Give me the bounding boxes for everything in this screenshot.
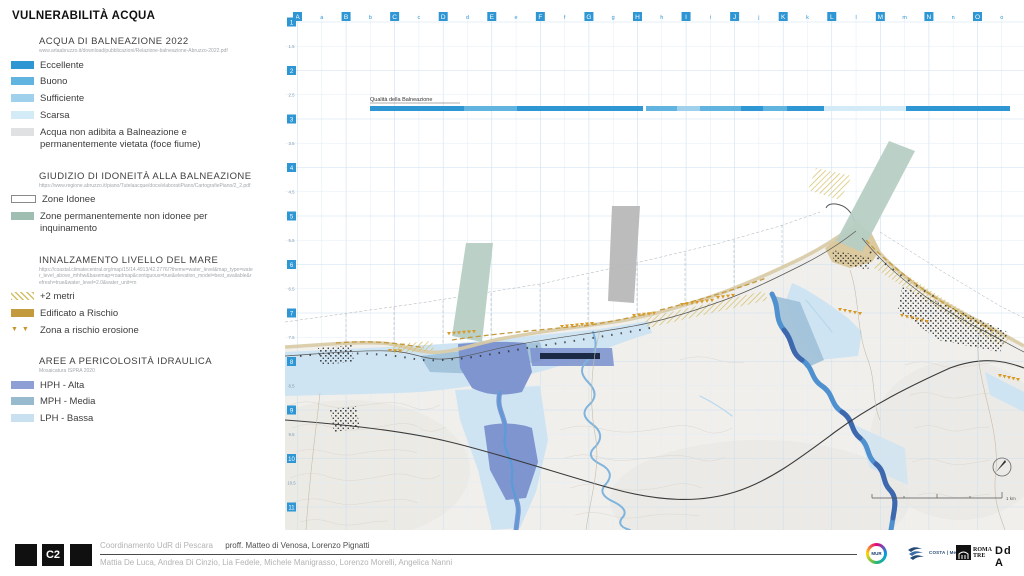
grid-col-label: I	[685, 14, 687, 21]
legend-swatch-fill	[11, 414, 34, 422]
legend-swatch-fill	[11, 77, 34, 85]
legend-label: MPH - Media	[40, 396, 95, 408]
grid-subcol-label: l	[855, 15, 856, 21]
legend-item: ▼▼Zona a rischio erosione	[11, 325, 285, 337]
legend-swatch-fill	[11, 94, 34, 102]
legend-item: Zone Idonee	[11, 194, 285, 206]
legend-item: Acqua non adibita a Balneazione e perman…	[11, 127, 285, 152]
legend-label: Eccellente	[40, 60, 84, 72]
legend-heading: GIUDIZIO DI IDONEITÀ ALLA BALNEAZIONE	[39, 171, 285, 182]
bathing-bar-segment	[646, 106, 677, 111]
legend-item: Eccellente	[11, 60, 285, 72]
bathing-bar-segment	[517, 106, 643, 111]
grid-col-label: D	[441, 14, 446, 21]
map-canvas: 1 km AaBbCcDdEeFfGgHhIiJjKkLlMmNnOo11.52…	[285, 8, 1024, 530]
grid-col-label: B	[344, 14, 348, 21]
grid-subcol-label: b	[369, 15, 372, 21]
credit-divider	[100, 554, 857, 555]
grid-subcol-label: e	[515, 15, 518, 21]
grid-col-label: A	[295, 14, 300, 21]
legend-item: Scarsa	[11, 110, 285, 122]
roma-tre-logo: ROMA TRE	[956, 545, 992, 560]
legend-swatch-fill	[11, 397, 34, 405]
grid-col-label: G	[586, 14, 591, 21]
legend-swatch-fill	[11, 381, 34, 389]
legend: ACQUA DI BALNEAZIONE 2022www.artaabruzzo…	[11, 36, 285, 426]
grid-subcol-label: m	[902, 15, 907, 21]
legend-source: https://coastal.climatecentral.org/map/1…	[39, 267, 254, 287]
professors-text: proff. Matteo di Venosa, Lorenzo Pignatt…	[225, 541, 369, 550]
grid-subrow-label: 10.5	[287, 481, 296, 486]
bathing-bar-segment	[677, 106, 700, 111]
footer-block-icon	[70, 544, 92, 566]
legend-label: Zone permanentemente non idonee per inqu…	[40, 211, 252, 236]
legend-item: Edificato a Rischio	[11, 308, 285, 320]
grid-subrow-label: 9.5	[289, 432, 296, 437]
legend-source: www.artaabruzzo.it/download/pubblicazion…	[39, 48, 254, 55]
grid-subcol-label: g	[612, 15, 615, 21]
bathing-bar-segment	[370, 106, 464, 111]
grid-subcol-label: j	[757, 15, 759, 21]
grid-col-label: L	[830, 14, 834, 21]
costa-med-logo: COSTA | Med	[906, 545, 959, 560]
grid-col-label: E	[490, 14, 495, 21]
legend-swatch-fill	[11, 61, 34, 69]
grid-subcol-label: n	[952, 15, 955, 21]
legend-item: Buono	[11, 76, 285, 88]
grid-subrow-label: 6.5	[289, 287, 296, 292]
credit-line-1: Coordinamento UdR di Pescara proff. Matt…	[100, 541, 370, 550]
legend-label: Edificato a Rischio	[40, 308, 118, 320]
legend-item: +2 metri	[11, 291, 285, 303]
grid-subcol-label: c	[418, 15, 421, 21]
legend-label: Zone Idonee	[42, 194, 95, 206]
legend-source: https://www.regione.abruzzo.it/piano/Tut…	[39, 183, 254, 190]
grid-col-label: K	[781, 14, 786, 21]
page-title: VULNERABILITÀ ACQUA	[12, 10, 285, 22]
bathing-bar-segment	[464, 106, 517, 111]
bathing-bar-label: Qualità della Balneazione	[370, 97, 432, 103]
legend-label: +2 metri	[40, 291, 75, 303]
legend-label: Buono	[40, 76, 67, 88]
legend-swatch-hatch	[11, 292, 34, 300]
legend-swatch-fill	[11, 128, 34, 136]
bathing-bar-segment	[763, 106, 787, 111]
grid-col-label: M	[878, 14, 883, 21]
legend-label: HPH - Alta	[40, 380, 84, 392]
grid-subcol-label: h	[660, 15, 663, 21]
grid-subcol-label: a	[320, 15, 324, 21]
legend-heading: AREE A PERICOLOSITÀ IDRAULICA	[39, 356, 285, 367]
dda-logo: Dd A	[995, 545, 1024, 569]
grid-subcol-label: d	[466, 15, 469, 21]
grid-row-label: 10	[288, 457, 295, 463]
legend-swatch-fill	[11, 111, 34, 119]
grid-subcol-label: o	[1000, 15, 1003, 21]
sheet-code-badge: C2	[42, 544, 64, 566]
scale-label: 1 km	[1006, 496, 1016, 501]
legend-label: Sufficiente	[40, 93, 84, 105]
legend-item: HPH - Alta	[11, 380, 285, 392]
wave-icon	[906, 545, 926, 560]
mur-logo: MUR	[866, 543, 887, 564]
legend-label: Acqua non adibita a Balneazione e perman…	[40, 127, 252, 152]
bathing-bar-segment	[906, 106, 1010, 111]
grid-subrow-label: 1.5	[289, 44, 296, 49]
bathing-bar-segment	[824, 106, 906, 111]
legend-source: Mosaicatura ISPRA 2020	[39, 368, 254, 375]
coordination-text: Coordinamento UdR di Pescara	[100, 541, 213, 550]
grid-row-label: 11	[288, 505, 295, 511]
grid-col-label: H	[635, 14, 640, 21]
grid-subrow-label: 8.5	[289, 384, 296, 389]
legend-label: LPH - Bassa	[40, 413, 93, 425]
grid-col-label: J	[733, 14, 736, 21]
grid-col-label: F	[538, 14, 542, 21]
grid-col-label: C	[392, 14, 397, 21]
credit-line-2: Mattia De Luca, Andrea Di Cinzio, Lia Fe…	[100, 558, 452, 567]
legend-swatch-fill	[11, 212, 34, 220]
grid-subrow-label: 7.5	[289, 335, 296, 340]
legend-heading: ACQUA DI BALNEAZIONE 2022	[39, 36, 285, 47]
grid-subcol-label: i	[710, 15, 711, 21]
erosion-triangle-icon	[447, 332, 451, 335]
grid-subrow-label: 4.5	[289, 190, 296, 195]
legend-section: GIUDIZIO DI IDONEITÀ ALLA BALNEAZIONEhtt…	[11, 171, 285, 236]
grid-col-label: O	[975, 14, 980, 21]
legend-item: LPH - Bassa	[11, 413, 285, 425]
legend-swatch-fill	[11, 309, 34, 317]
legend-item: Zone permanentemente non idonee per inqu…	[11, 211, 285, 236]
grid-subcol-label: f	[564, 15, 566, 21]
legend-section: ACQUA DI BALNEAZIONE 2022www.artaabruzzo…	[11, 36, 285, 152]
roma-tre-icon	[956, 545, 971, 560]
grid-subrow-label: 5.5	[289, 238, 296, 243]
grid-subrow-label: 2.5	[289, 93, 296, 98]
bathing-bar-segment	[787, 106, 824, 111]
legend-item: Sufficiente	[11, 93, 285, 105]
legend-label: Zona a rischio erosione	[40, 325, 139, 337]
legend-heading: INNALZAMENTO LIVELLO DEL MARE	[39, 255, 285, 266]
bathing-bar-segment	[700, 106, 741, 111]
footer-block-icon	[15, 544, 37, 566]
legend-sidebar: VULNERABILITÀ ACQUA ACQUA DI BALNEAZIONE…	[0, 0, 285, 530]
grid-col-label: N	[927, 14, 932, 21]
bathing-quality-bar: Qualità della Balneazione	[370, 97, 1010, 111]
legend-section: AREE A PERICOLOSITÀ IDRAULICAMosaicatura…	[11, 356, 285, 426]
legend-label: Scarsa	[40, 110, 70, 122]
legend-swatch-outline	[11, 195, 36, 203]
bathing-bar-segment	[741, 106, 763, 111]
legend-swatch-triangles: ▼▼	[11, 326, 34, 334]
grid-subrow-label: 3.5	[289, 141, 296, 146]
legend-section: INNALZAMENTO LIVELLO DEL MAREhttps://coa…	[11, 255, 285, 338]
port-structure	[540, 353, 600, 359]
legend-item: MPH - Media	[11, 396, 285, 408]
grid-subcol-label: k	[806, 15, 809, 21]
